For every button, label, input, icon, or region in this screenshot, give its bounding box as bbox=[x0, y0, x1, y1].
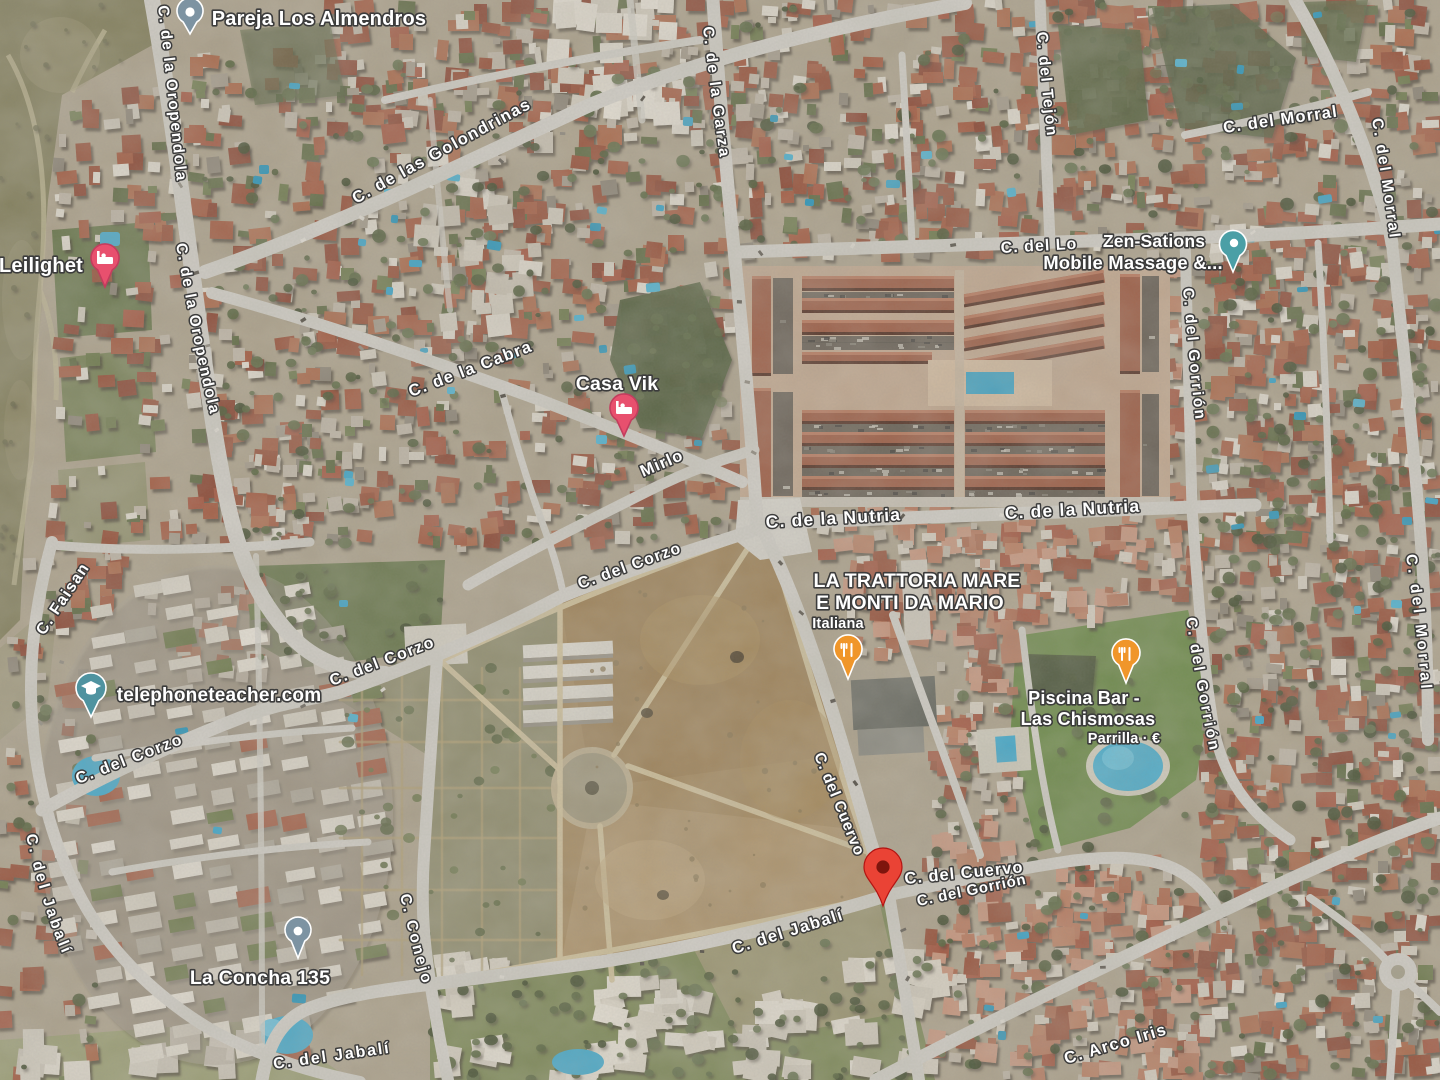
svg-text:telephoneteacher.com: telephoneteacher.com bbox=[117, 685, 322, 706]
svg-text:E MONTI DA MARIO: E MONTI DA MARIO bbox=[816, 592, 1004, 614]
svg-text:Mobile Massage &...: Mobile Massage &... bbox=[1043, 252, 1223, 273]
svg-text:Zen-Sations: Zen-Sations bbox=[1103, 231, 1205, 251]
svg-text:Casa Vik: Casa Vik bbox=[576, 373, 659, 395]
svg-text:Italiana: Italiana bbox=[812, 616, 864, 632]
svg-text:Leilighet: Leilighet bbox=[0, 255, 83, 277]
svg-text:Parrilla · €: Parrilla · € bbox=[1088, 731, 1161, 747]
svg-text:La Concha 135: La Concha 135 bbox=[190, 967, 330, 989]
svg-text:Piscina Bar -: Piscina Bar - bbox=[1028, 688, 1140, 708]
svg-text:Las Chismosas: Las Chismosas bbox=[1021, 709, 1156, 729]
svg-text:Pareja Los Almendros: Pareja Los Almendros bbox=[212, 8, 426, 30]
svg-text:LA TRATTORIA MARE: LA TRATTORIA MARE bbox=[813, 570, 1020, 592]
